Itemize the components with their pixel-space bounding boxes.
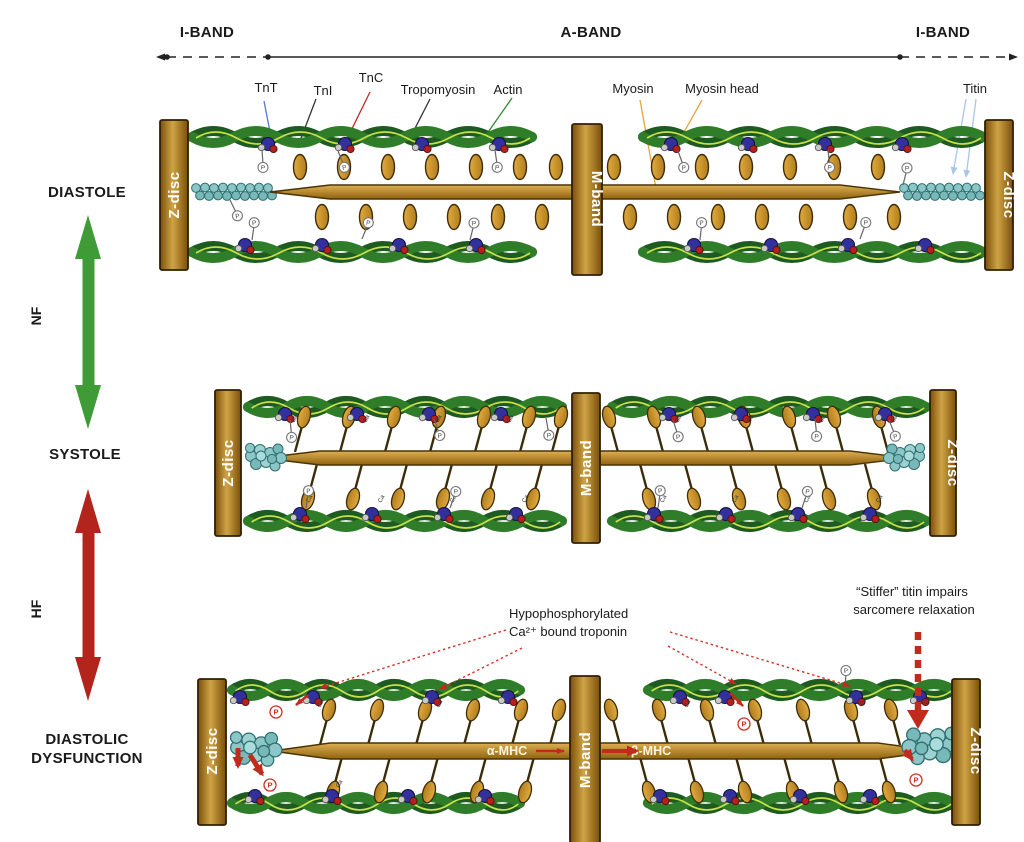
band-dimension-line — [156, 54, 1018, 61]
diastolic-dysfunction-label-line2: DYSFUNCTION — [31, 750, 143, 767]
m-band-label: M-band — [577, 732, 594, 788]
actin-label: Actin — [494, 82, 523, 97]
z-disc-label: Z-disc — [967, 727, 984, 774]
titin-compressed-left — [245, 443, 286, 471]
systole-sarcomere: Z-disc Z-disc M-band — [215, 390, 961, 543]
m-band-label: M-band — [588, 171, 605, 227]
sarcomere-figure: P P P Ca — [0, 0, 1024, 842]
tni-label: TnI — [314, 83, 333, 98]
z-disc-label: Z-disc — [944, 439, 961, 486]
z-disc-label: Z-disc — [220, 439, 237, 486]
hf-label: HF — [28, 600, 44, 619]
titin-spring-right — [900, 183, 985, 200]
sarcomere-artwork: P P P Ca — [0, 0, 1024, 842]
m-band-label: M-band — [578, 440, 595, 496]
myosin-head-label: Myosin head — [685, 81, 759, 96]
z-disc-label: Z-disc — [166, 171, 183, 218]
tropomyosin-label: Tropomyosin — [401, 82, 476, 97]
systole-label: SYSTOLE — [49, 446, 121, 463]
titin-label: Titin — [963, 81, 987, 96]
diastole-label: DIASTOLE — [48, 184, 126, 201]
hypophosphorylated-annotation-line2: Ca²⁺ bound troponin — [509, 624, 627, 640]
nf-label: NF — [28, 307, 44, 326]
diastolic-dysfunction-label-line1: DIASTOLIC — [45, 731, 128, 748]
stiffer-titin-annotation-line1: “Stiffer” titin impairs — [856, 584, 968, 599]
titin-compressed-right — [884, 443, 925, 471]
z-disc-label: Z-disc — [1000, 171, 1017, 218]
z-disc-label: Z-disc — [204, 727, 221, 774]
i-band-left-label: I-BAND — [180, 24, 234, 41]
stiffer-titin-annotation-line2: sarcomere relaxation — [853, 602, 974, 617]
myosin-label: Myosin — [612, 81, 653, 96]
hf-double-arrow — [75, 489, 101, 701]
tnc-label: TnC — [359, 70, 384, 85]
titin-spring-left — [192, 183, 277, 200]
a-band-label: A-BAND — [561, 24, 622, 41]
diastolic-dysfunction-sarcomere: Z-disc Z-disc M-band α-MHC β-MHC — [198, 630, 984, 842]
hypophosphorylated-annotation-line1: Hypophosphorylated — [509, 606, 628, 621]
tnt-label: TnT — [254, 80, 277, 95]
alpha-mhc-label: α-MHC — [487, 744, 527, 758]
beta-mhc-label: β-MHC — [631, 744, 671, 758]
nf-double-arrow — [75, 215, 101, 429]
diastole-sarcomere: Z-disc Z-disc M-band — [160, 120, 1017, 275]
i-band-right-label: I-BAND — [916, 24, 970, 41]
